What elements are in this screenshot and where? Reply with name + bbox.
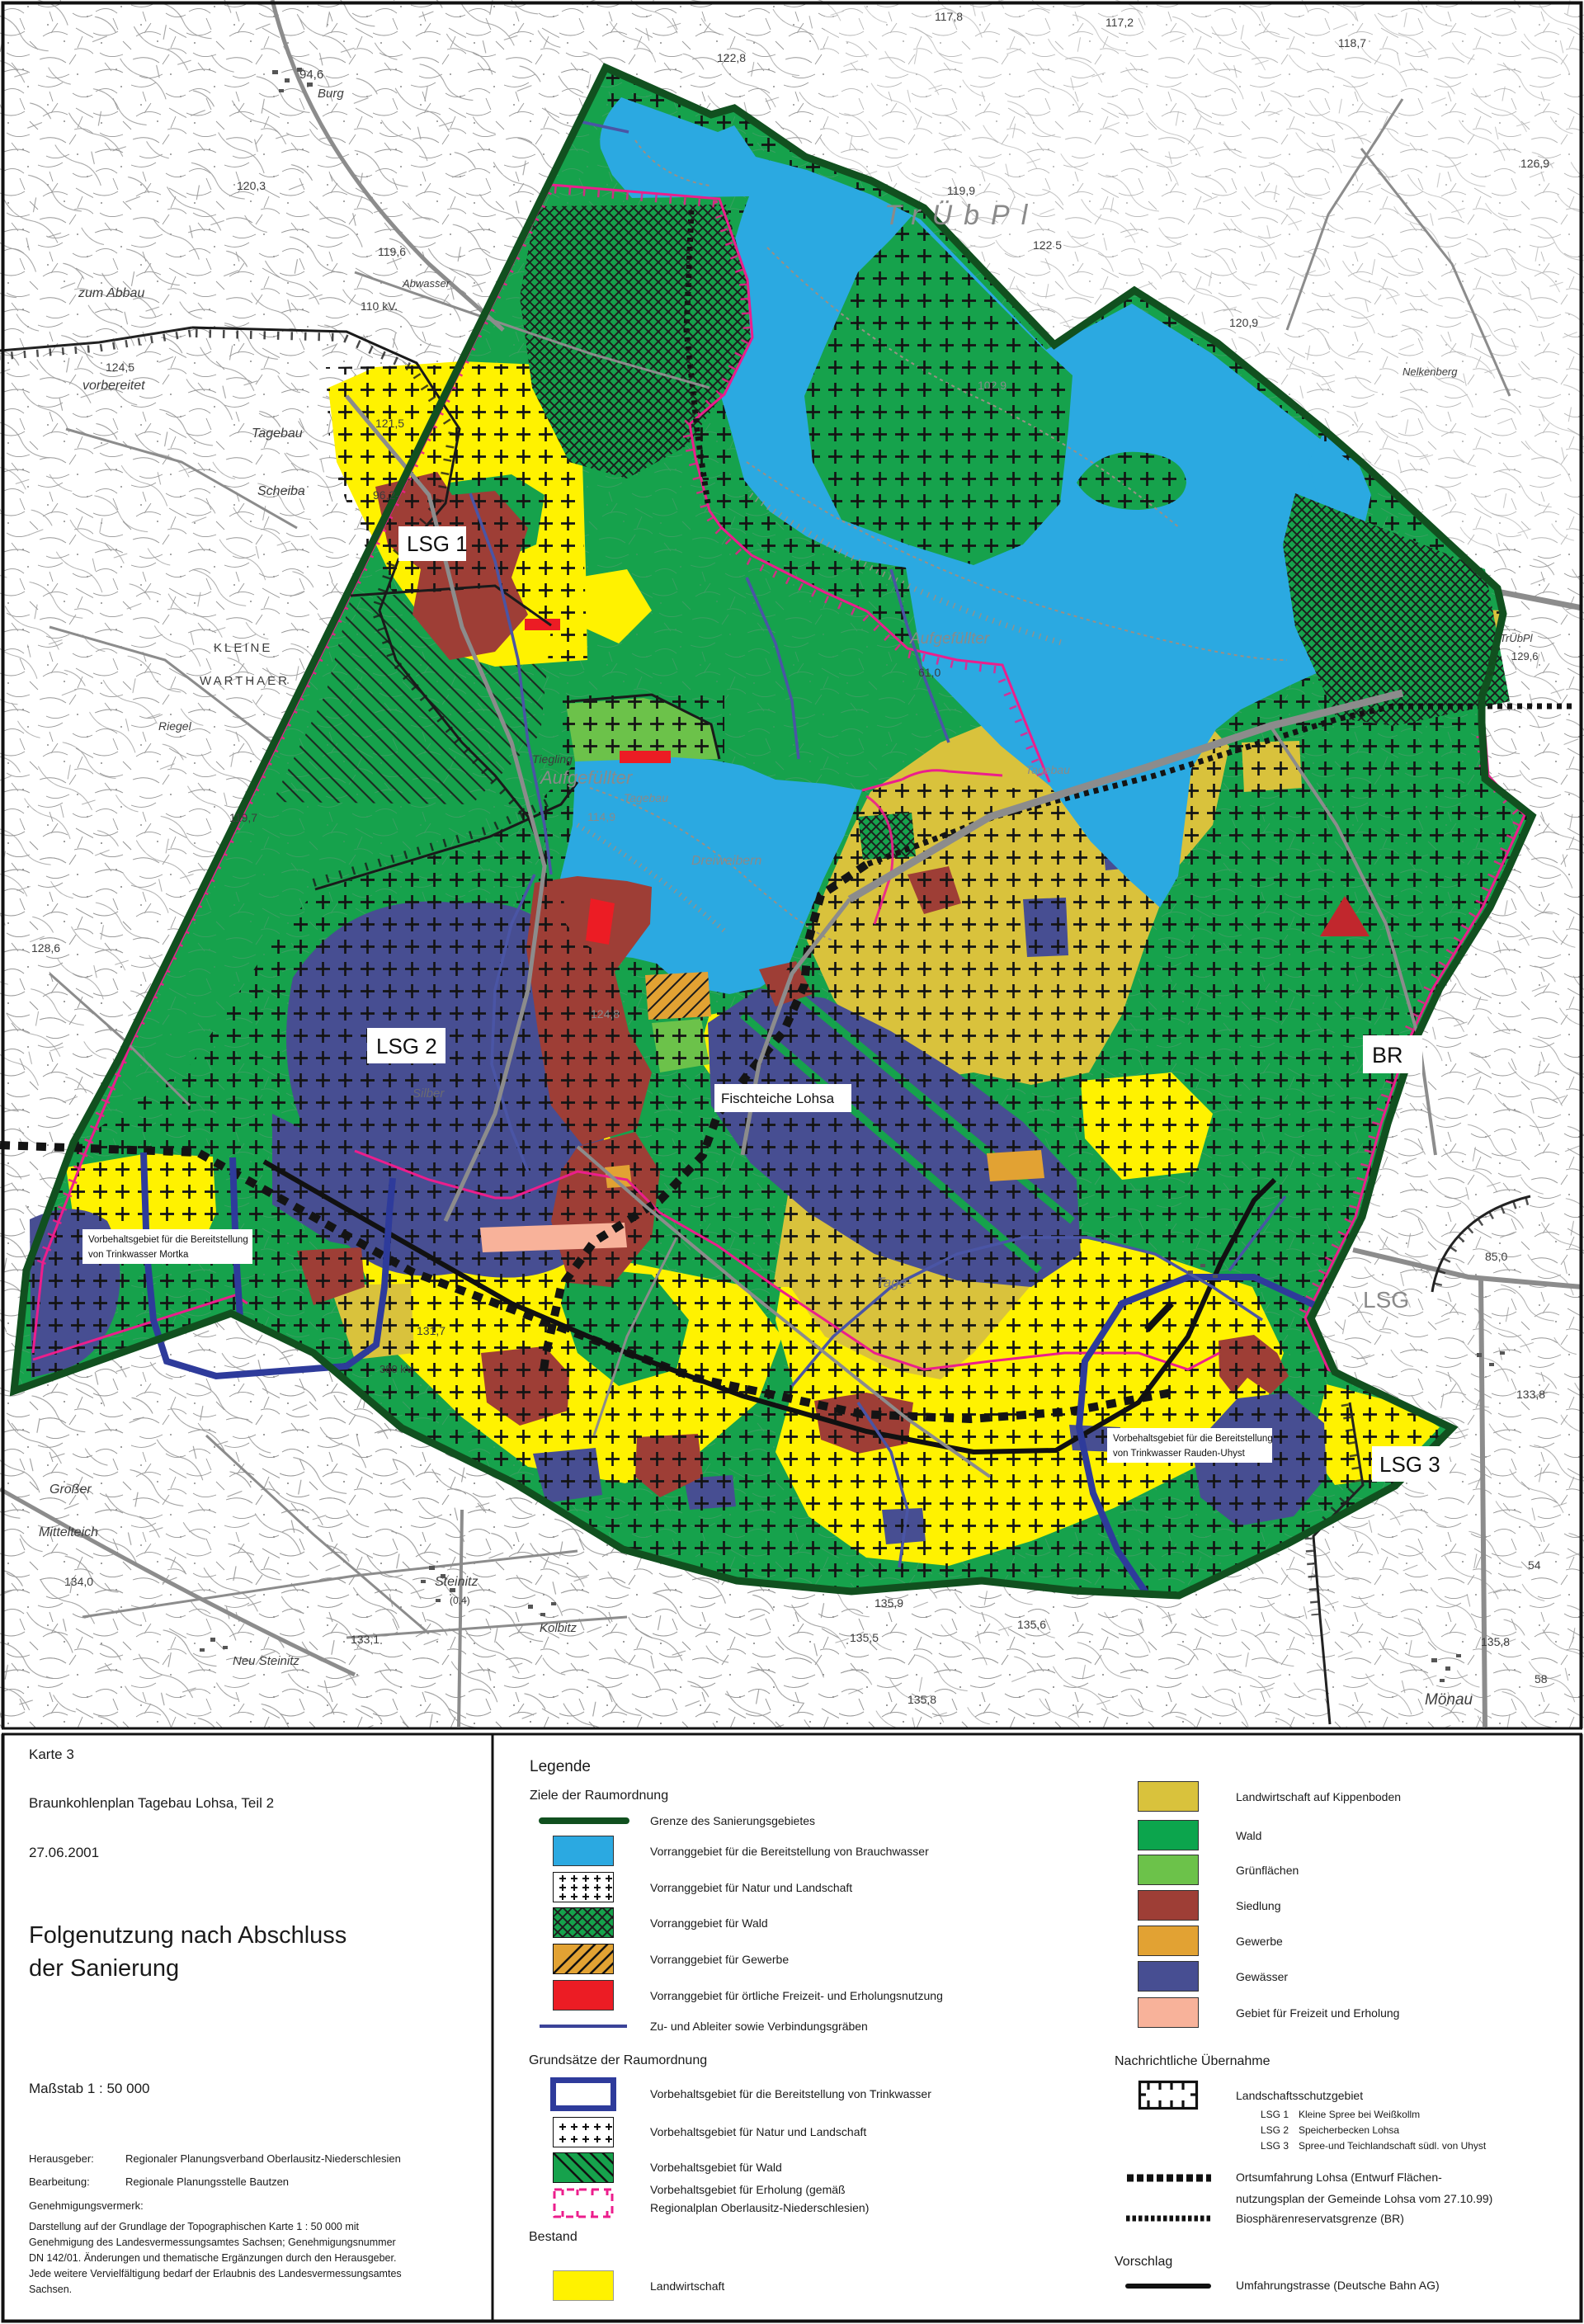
svg-text:122 5: 122 5 — [1033, 238, 1062, 252]
svg-text:Tagebau: Tagebau — [252, 427, 303, 441]
svg-text:WARTHAER: WARTHAER — [200, 674, 290, 688]
svg-text:110 kV.: 110 kV. — [361, 299, 398, 313]
svg-text:Silber: Silber — [412, 1087, 445, 1101]
svg-text:128,6: 128,6 — [31, 941, 60, 955]
svg-text:TrÜbPl: TrÜbPl — [1500, 632, 1534, 644]
svg-text:Riegel: Riegel — [158, 719, 192, 733]
svg-text:LSG: LSG — [1363, 1287, 1409, 1313]
svg-text:94,6: 94,6 — [299, 68, 323, 82]
svg-text:(0,4): (0,4) — [450, 1595, 470, 1606]
svg-text:von Trinkwasser Mortka: von Trinkwasser Mortka — [88, 1250, 189, 1260]
svg-text:Tagebau: Tagebau — [1025, 763, 1070, 776]
svg-text:135,6: 135,6 — [1017, 1618, 1046, 1631]
svg-text:380 kV: 380 kV — [379, 1363, 413, 1375]
svg-text:54: 54 — [1528, 1558, 1541, 1572]
svg-text:117,2: 117,2 — [1105, 16, 1134, 29]
svg-text:122,8: 122,8 — [717, 51, 746, 64]
svg-text:Kolbitz: Kolbitz — [540, 1621, 577, 1635]
svg-text:131,7: 131,7 — [417, 1324, 445, 1337]
svg-text:Aufgefüllter: Aufgefüllter — [539, 767, 634, 788]
svg-text:133,1: 133,1 — [351, 1633, 379, 1646]
svg-text:Fischteiche Lohsa: Fischteiche Lohsa — [721, 1091, 835, 1106]
svg-text:85,0: 85,0 — [1485, 1250, 1507, 1263]
svg-text:Mönau: Mönau — [1425, 1691, 1473, 1709]
svg-text:119,7: 119,7 — [229, 811, 257, 824]
svg-text:zum Abbau: zum Abbau — [78, 286, 144, 300]
svg-text:Tage-: Tage- — [876, 1275, 912, 1290]
svg-text:TrÜbPl: TrÜbPl — [884, 200, 1039, 231]
svg-text:119,6: 119,6 — [378, 245, 406, 258]
svg-text:129,6: 129,6 — [1511, 650, 1539, 662]
svg-text:135,9: 135,9 — [874, 1596, 903, 1610]
svg-text:KLEINE: KLEINE — [214, 641, 272, 655]
svg-text:von Trinkwasser Rauden-Uhyst: von Trinkwasser Rauden-Uhyst — [1113, 1449, 1246, 1459]
svg-text:Großer: Großer — [49, 1483, 92, 1497]
svg-text:96,2-: 96,2- — [373, 488, 399, 502]
svg-text:Abwasser: Abwasser — [402, 277, 450, 290]
svg-text:Dreiweibern: Dreiweibern — [691, 854, 761, 868]
svg-text:61,0: 61,0 — [918, 666, 940, 679]
svg-text:Neu Steinitz: Neu Steinitz — [233, 1654, 299, 1668]
svg-text:124,8: 124,8 — [591, 1007, 620, 1021]
svg-text:119,9: 119,9 — [947, 184, 975, 197]
svg-text:Tagebau: Tagebau — [624, 791, 668, 804]
svg-text:Vorbehaltsgebiet für die Berei: Vorbehaltsgebiet für die Bereitstellung — [1113, 1434, 1273, 1444]
svg-text:135,8: 135,8 — [1481, 1635, 1510, 1648]
svg-text:Burg: Burg — [318, 87, 344, 101]
svg-text:Aufgefüllter: Aufgefüllter — [909, 630, 990, 648]
svg-text:134,0: 134,0 — [64, 1575, 93, 1588]
svg-text:BR: BR — [1372, 1043, 1403, 1068]
svg-text:Vorbehaltsgebiet für die Berei: Vorbehaltsgebiet für die Bereitstellung — [88, 1235, 248, 1245]
svg-text:124,5: 124,5 — [106, 361, 134, 374]
svg-text:LSG 3: LSG 3 — [1379, 1452, 1440, 1477]
svg-text:120,3: 120,3 — [237, 179, 266, 192]
svg-text:vorbereitet: vorbereitet — [82, 379, 145, 393]
svg-text:126,9: 126,9 — [1520, 157, 1549, 170]
svg-text:114,9: 114,9 — [587, 810, 615, 823]
svg-text:Tiegling: Tiegling — [532, 752, 573, 766]
svg-text:121,5: 121,5 — [375, 417, 404, 430]
svg-text:Nelkenberg: Nelkenberg — [1402, 365, 1458, 378]
svg-text:Scheiba: Scheiba — [257, 484, 305, 498]
svg-text:LSG 1: LSG 1 — [407, 531, 468, 556]
svg-text:Mittelteich: Mittelteich — [39, 1525, 98, 1539]
svg-text:133,8: 133,8 — [1516, 1388, 1545, 1401]
svg-text:120,9: 120,9 — [1229, 316, 1258, 329]
svg-text:135,5: 135,5 — [850, 1631, 879, 1644]
svg-text:117,8: 117,8 — [935, 10, 963, 23]
svg-text:118,7: 118,7 — [1338, 36, 1366, 49]
svg-text:135,8: 135,8 — [907, 1693, 936, 1706]
svg-text:LSG 2: LSG 2 — [376, 1034, 437, 1058]
svg-text:58: 58 — [1534, 1672, 1548, 1685]
